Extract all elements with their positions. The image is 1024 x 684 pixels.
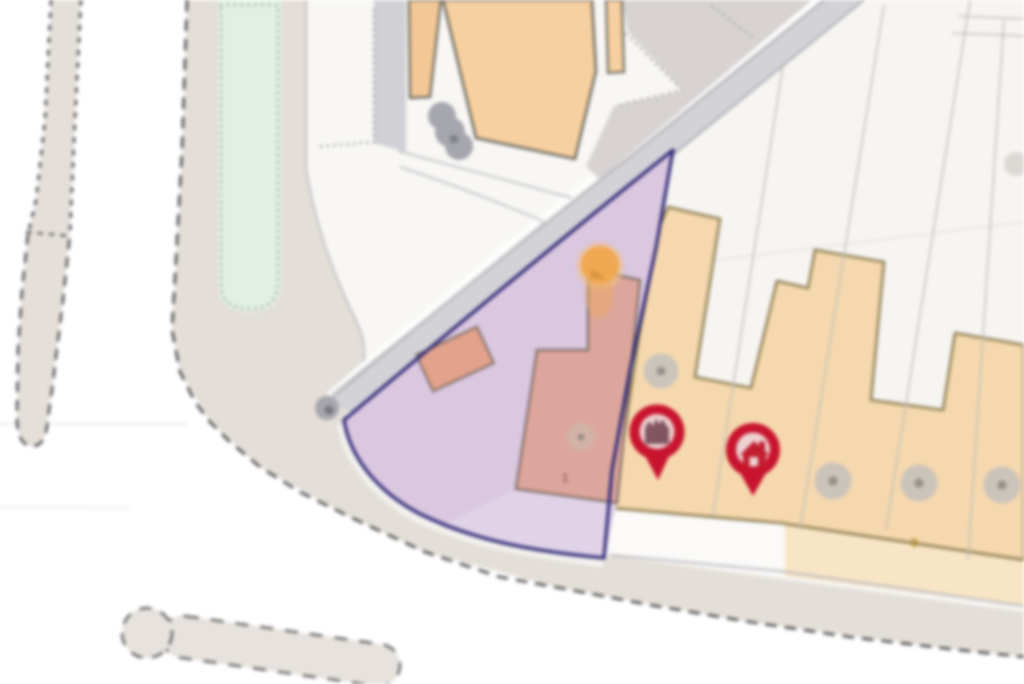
svg-text:9: 9: [911, 536, 918, 550]
svg-text:1: 1: [562, 471, 569, 485]
